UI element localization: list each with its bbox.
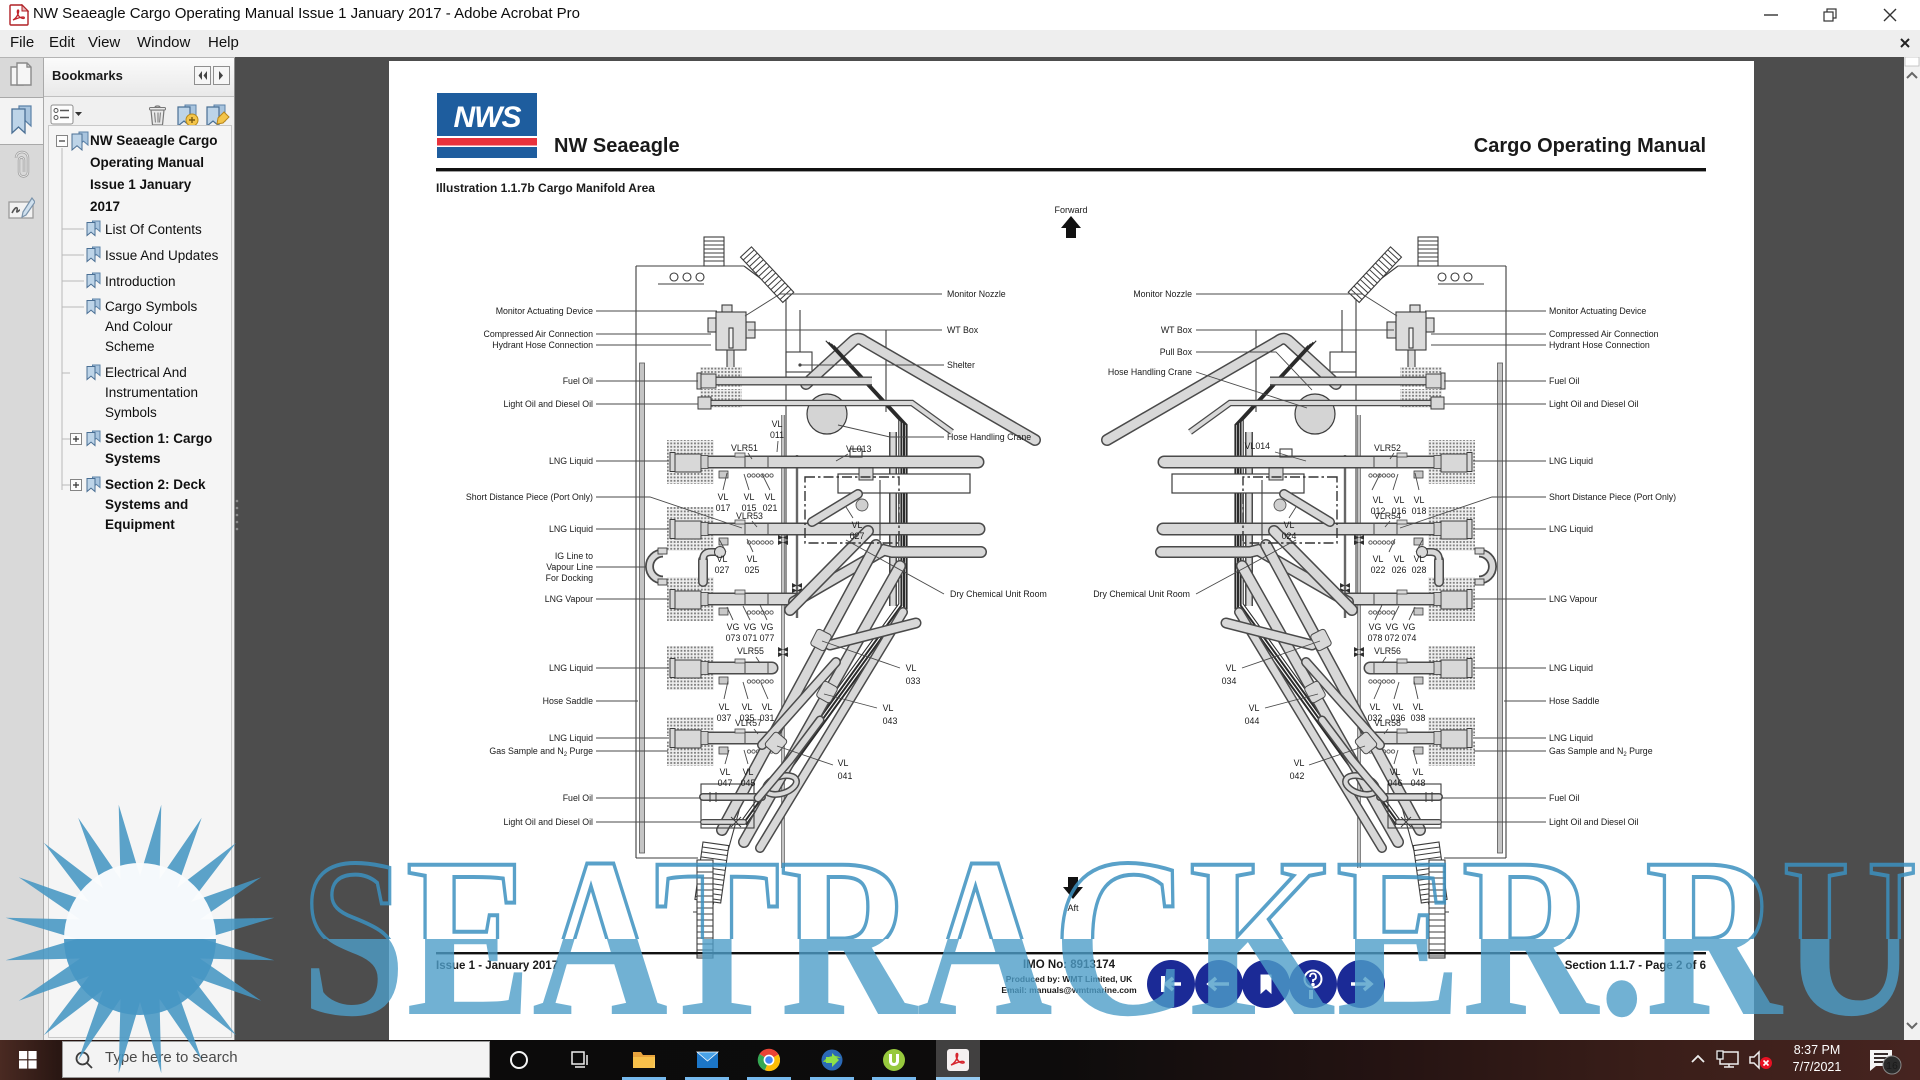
- svg-text:046: 046: [1388, 778, 1403, 788]
- svg-text:Hose Saddle: Hose Saddle: [543, 696, 593, 706]
- svg-text:VLR52: VLR52: [1374, 443, 1401, 453]
- svg-text:LNG Liquid: LNG Liquid: [1549, 663, 1593, 673]
- svg-text:Monitor Nozzle: Monitor Nozzle: [947, 289, 1006, 299]
- svg-text:073: 073: [726, 633, 741, 643]
- svg-text:VLR54: VLR54: [1374, 511, 1401, 521]
- svg-text:VL: VL: [720, 767, 731, 777]
- svg-text:VL: VL: [1413, 702, 1424, 712]
- svg-text:Dry Chemical Unit Room: Dry Chemical Unit Room: [950, 589, 1047, 599]
- svg-text:LNG Liquid: LNG Liquid: [1549, 524, 1593, 534]
- svg-text:022: 022: [1371, 565, 1386, 575]
- svg-text:Vapour Line: Vapour Line: [546, 562, 593, 572]
- svg-text:VL: VL: [1226, 663, 1237, 673]
- svg-text:For Docking: For Docking: [546, 573, 594, 583]
- svg-text:024: 024: [1282, 531, 1297, 541]
- svg-text:043: 043: [883, 716, 898, 726]
- svg-text:VL014: VL014: [1245, 441, 1271, 451]
- svg-text:VL: VL: [1394, 495, 1405, 505]
- svg-text:017: 017: [716, 503, 731, 513]
- svg-text:Forward: Forward: [1054, 205, 1087, 215]
- svg-text:041: 041: [838, 771, 853, 781]
- svg-text:025: 025: [745, 565, 760, 575]
- svg-text:048: 048: [1411, 778, 1426, 788]
- svg-text:VL: VL: [718, 492, 729, 502]
- svg-text:VL: VL: [1413, 767, 1424, 777]
- svg-text:042: 042: [1290, 771, 1305, 781]
- svg-text:034: 034: [1222, 676, 1237, 686]
- svg-text:Hose Saddle: Hose Saddle: [1549, 696, 1599, 706]
- svg-text:Cargo Operating Manual: Cargo Operating Manual: [1474, 135, 1706, 157]
- svg-text:VG: VG: [761, 622, 774, 632]
- svg-text:033: 033: [906, 676, 921, 686]
- svg-text:Fuel Oil: Fuel Oil: [563, 376, 593, 386]
- svg-text:Light Oil and Diesel Oil: Light Oil and Diesel Oil: [504, 817, 594, 827]
- svg-text:VL: VL: [772, 419, 783, 429]
- svg-text:038: 038: [1411, 713, 1426, 723]
- svg-text:LNG Vapour: LNG Vapour: [545, 594, 593, 604]
- svg-text:VL: VL: [838, 758, 849, 768]
- svg-text:VL: VL: [747, 554, 758, 564]
- svg-text:LNG Liquid: LNG Liquid: [549, 456, 593, 466]
- svg-text:LNG Vapour: LNG Vapour: [1549, 594, 1597, 604]
- svg-text:VG: VG: [744, 622, 757, 632]
- svg-text:072: 072: [1385, 633, 1400, 643]
- svg-text:VL: VL: [1294, 758, 1305, 768]
- svg-text:Dry Chemical Unit Room: Dry Chemical Unit Room: [1093, 589, 1190, 599]
- svg-text:VL: VL: [852, 520, 863, 530]
- svg-text:VG: VG: [1386, 622, 1399, 632]
- svg-text:077: 077: [760, 633, 775, 643]
- svg-text:WT Box: WT Box: [1161, 325, 1193, 335]
- svg-text:VLR57: VLR57: [735, 718, 762, 728]
- svg-text:027: 027: [715, 565, 730, 575]
- svg-text:NWS: NWS: [454, 101, 522, 134]
- svg-text:VL: VL: [717, 554, 728, 564]
- svg-text:VL: VL: [742, 702, 753, 712]
- svg-text:VLR55: VLR55: [737, 646, 764, 656]
- svg-text:LNG Liquid: LNG Liquid: [549, 733, 593, 743]
- svg-text:Hydrant Hose Connection: Hydrant Hose Connection: [1549, 340, 1650, 350]
- svg-text:Shelter: Shelter: [947, 360, 975, 370]
- svg-text:Hose Handling Crane: Hose Handling Crane: [1108, 367, 1192, 377]
- svg-text:Pull Box: Pull Box: [1160, 347, 1193, 357]
- svg-text:Email: manuals@wmtmarine.com: Email: manuals@wmtmarine.com: [1001, 985, 1137, 995]
- svg-text:VL: VL: [1370, 702, 1381, 712]
- svg-text:VG: VG: [1403, 622, 1416, 632]
- svg-text:044: 044: [1245, 716, 1260, 726]
- svg-text:VL: VL: [719, 702, 730, 712]
- svg-text:VLR51: VLR51: [731, 443, 758, 453]
- svg-text:018: 018: [1412, 506, 1427, 516]
- svg-text:VL: VL: [765, 492, 776, 502]
- svg-text:028: 028: [1412, 565, 1427, 575]
- svg-text:VL: VL: [743, 767, 754, 777]
- svg-text:VL: VL: [1414, 495, 1425, 505]
- svg-text:VL: VL: [1249, 703, 1260, 713]
- svg-text:074: 074: [1402, 633, 1417, 643]
- svg-text:Compressed Air Connection: Compressed Air Connection: [1549, 329, 1659, 339]
- svg-text:037: 037: [717, 713, 732, 723]
- svg-text:Produced by: WMT Limited, UK: Produced by: WMT Limited, UK: [1006, 974, 1133, 984]
- svg-text:IG Line to: IG Line to: [555, 551, 593, 561]
- svg-text:047: 047: [718, 778, 733, 788]
- svg-text:VL013: VL013: [846, 444, 872, 454]
- svg-text:Fuel Oil: Fuel Oil: [1549, 793, 1579, 803]
- svg-text:045: 045: [741, 778, 756, 788]
- svg-text:LNG Liquid: LNG Liquid: [549, 524, 593, 534]
- svg-text:VL: VL: [1373, 554, 1384, 564]
- svg-text:WT Box: WT Box: [947, 325, 979, 335]
- svg-text:071: 071: [743, 633, 758, 643]
- svg-text:Monitor Actuating Device: Monitor Actuating Device: [496, 306, 593, 316]
- svg-text:VG: VG: [1369, 622, 1382, 632]
- svg-text:VL: VL: [744, 492, 755, 502]
- svg-text:Monitor Nozzle: Monitor Nozzle: [1133, 289, 1192, 299]
- svg-text:Light Oil and Diesel Oil: Light Oil and Diesel Oil: [1549, 399, 1639, 409]
- svg-text:LNG Liquid: LNG Liquid: [1549, 456, 1593, 466]
- svg-text:026: 026: [1392, 565, 1407, 575]
- svg-text:Short Distance Piece (Port Onl: Short Distance Piece (Port Only): [1549, 492, 1676, 502]
- svg-text:VG: VG: [727, 622, 740, 632]
- svg-text:Illustration 1.1.7b Cargo Mani: Illustration 1.1.7b Cargo Manifold Area: [436, 181, 655, 195]
- svg-text:VLR56: VLR56: [1374, 646, 1401, 656]
- svg-text:078: 078: [1368, 633, 1383, 643]
- svg-text:VL: VL: [762, 702, 773, 712]
- svg-text:VL: VL: [883, 703, 894, 713]
- svg-text:Aft: Aft: [1067, 903, 1079, 913]
- svg-text:Issue 1 - January 2017: Issue 1 - January 2017: [436, 960, 558, 972]
- svg-text:VL: VL: [1373, 495, 1384, 505]
- svg-text:Section 1.1.7 - Page 2 of 6: Section 1.1.7 - Page 2 of 6: [1565, 960, 1706, 972]
- svg-text:NW Seaeagle: NW Seaeagle: [554, 135, 680, 157]
- svg-text:Hydrant Hose Connection: Hydrant Hose Connection: [492, 340, 593, 350]
- svg-text:Short Distance Piece (Port Onl: Short Distance Piece (Port Only): [466, 492, 593, 502]
- svg-text:LNG Liquid: LNG Liquid: [1549, 733, 1593, 743]
- svg-text:VLR53: VLR53: [736, 511, 763, 521]
- svg-text:VL: VL: [1284, 520, 1295, 530]
- svg-text:VL: VL: [1393, 702, 1404, 712]
- svg-text:Light Oil and Diesel Oil: Light Oil and Diesel Oil: [1549, 817, 1639, 827]
- svg-text:Hose Handling Crane: Hose Handling Crane: [947, 432, 1031, 442]
- svg-text:VL: VL: [1390, 767, 1401, 777]
- svg-text:VL: VL: [1394, 554, 1405, 564]
- svg-text:VLR58: VLR58: [1374, 718, 1401, 728]
- svg-text:027: 027: [850, 531, 865, 541]
- svg-text:LNG Liquid: LNG Liquid: [549, 663, 593, 673]
- svg-text:021: 021: [763, 503, 778, 513]
- svg-text:Monitor Actuating Device: Monitor Actuating Device: [1549, 306, 1646, 316]
- svg-text:Compressed Air Connection: Compressed Air Connection: [483, 329, 593, 339]
- svg-text:VL: VL: [1414, 554, 1425, 564]
- svg-text:Fuel Oil: Fuel Oil: [563, 793, 593, 803]
- svg-text:Light Oil and Diesel Oil: Light Oil and Diesel Oil: [504, 399, 594, 409]
- svg-text:Fuel Oil: Fuel Oil: [1549, 376, 1579, 386]
- svg-text:011: 011: [770, 430, 784, 440]
- svg-text:16: 16: [1886, 1060, 1898, 1072]
- svg-text:VL: VL: [906, 663, 917, 673]
- svg-text:IMO No: 8913174: IMO No: 8913174: [1023, 959, 1116, 971]
